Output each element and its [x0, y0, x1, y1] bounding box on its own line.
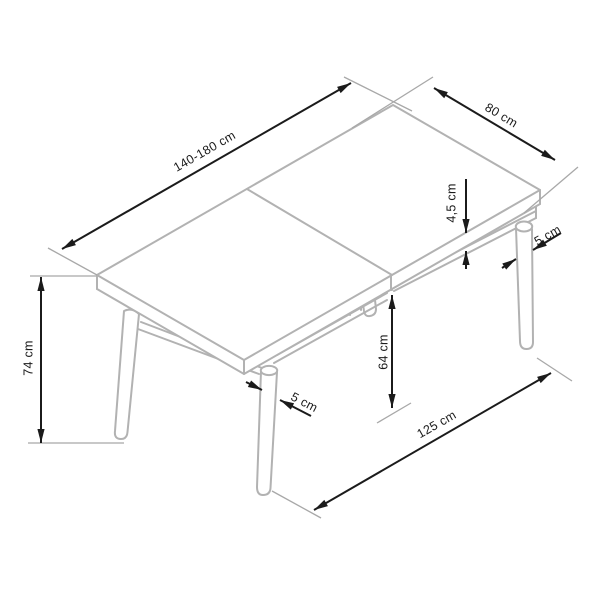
table-line-drawing: 140-180 cm 80 cm 74 cm 4,5 cm 5 cm 5 cm …	[0, 0, 605, 605]
label-leg-span: 125 cm	[415, 408, 459, 441]
label-front-leg-diameter: 5 cm	[289, 390, 321, 415]
rear-right-leg-top	[516, 222, 532, 232]
label-table-height: 74 cm	[21, 340, 35, 376]
label-clearance: 64 cm	[376, 334, 390, 370]
label-rear-leg-diameter: 5 cm	[532, 222, 564, 248]
dim-leg-span-line	[314, 373, 551, 510]
dimension-diagram: 140-180 cm 80 cm 74 cm 4,5 cm 5 cm 5 cm …	[0, 0, 605, 605]
left-leg	[115, 310, 139, 439]
front-leg-top	[261, 366, 277, 375]
rear-right-leg	[516, 228, 533, 349]
dim-rear-leg-arrow-left	[502, 259, 516, 268]
table-top	[97, 105, 540, 374]
label-top-thickness: 4,5 cm	[444, 183, 458, 222]
label-table-depth: 80 cm	[483, 100, 521, 130]
